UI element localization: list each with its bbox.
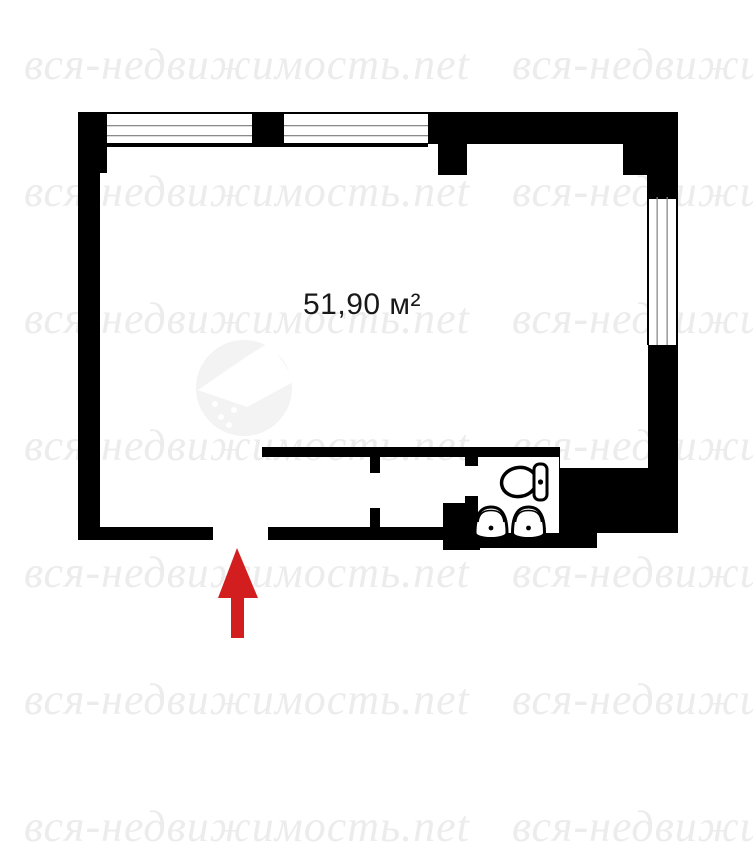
wall	[80, 527, 213, 540]
floor-plan	[0, 0, 753, 853]
area-label: 51,90 м²	[303, 288, 421, 322]
window-top-1	[107, 112, 252, 147]
wall	[559, 468, 678, 533]
wall	[623, 112, 678, 175]
window-top-2	[284, 112, 428, 147]
entrance-arrow-icon	[218, 548, 258, 638]
wall	[647, 175, 678, 197]
wall	[262, 447, 560, 457]
wall	[78, 173, 100, 540]
house-logo-icon	[196, 340, 295, 436]
wall	[252, 112, 284, 147]
wall	[268, 527, 443, 540]
sink-icon	[475, 507, 507, 539]
wall	[465, 457, 478, 466]
wall	[78, 112, 107, 173]
floorplan-page: вся-недвижимость.net вся-недвижимость.ne…	[0, 0, 753, 853]
wall	[370, 508, 380, 528]
wall	[370, 447, 380, 473]
sink-icon	[513, 507, 545, 539]
window-right	[647, 197, 678, 345]
walls	[78, 112, 678, 550]
wall	[438, 144, 467, 175]
